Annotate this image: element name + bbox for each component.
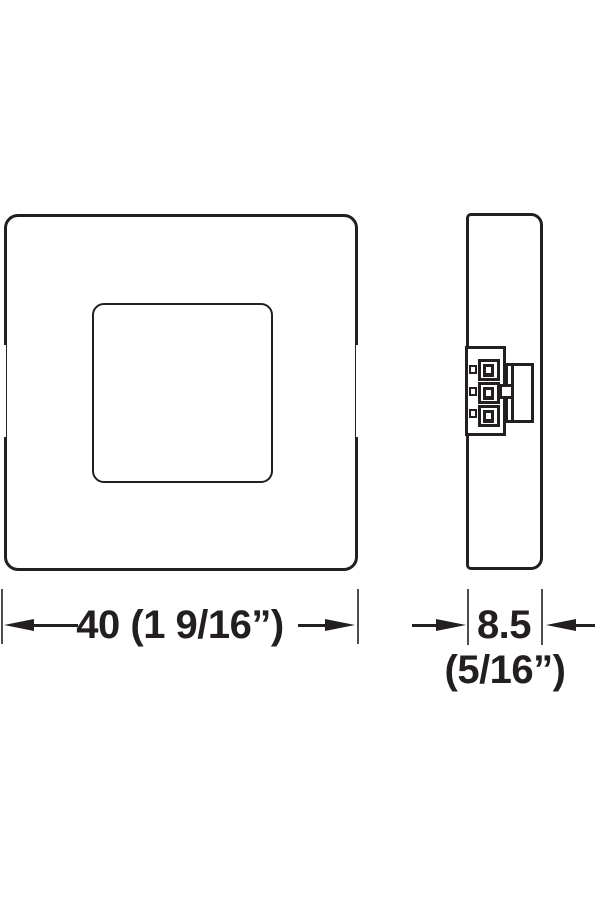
depth-dimension-sublabel: (5/16”)	[410, 649, 600, 691]
housing-tab	[469, 409, 477, 418]
terminal-port	[478, 359, 500, 381]
terminal-slot-hole	[486, 367, 491, 373]
terminal-slot-hole	[486, 413, 491, 419]
front-right-edge-notch	[356, 345, 358, 437]
plug-latch-square	[499, 384, 514, 399]
drawing-canvas: 40 (1 9/16”) 8.5 (5/16”)	[0, 0, 600, 900]
terminal-slot-hole	[486, 390, 491, 396]
terminal-slot	[483, 410, 494, 423]
housing-tab	[469, 387, 477, 396]
front-view-inner-square	[92, 303, 273, 483]
front-left-edge-notch	[4, 345, 6, 437]
terminal-slot	[483, 387, 494, 400]
depth-dimension-label: 8.5	[430, 604, 578, 646]
terminal-port	[478, 382, 500, 404]
width-dimension-label: 40 (1 9/16”)	[0, 604, 360, 646]
terminal-port	[478, 405, 500, 427]
housing-tab	[469, 365, 477, 374]
terminal-slot	[483, 364, 494, 377]
